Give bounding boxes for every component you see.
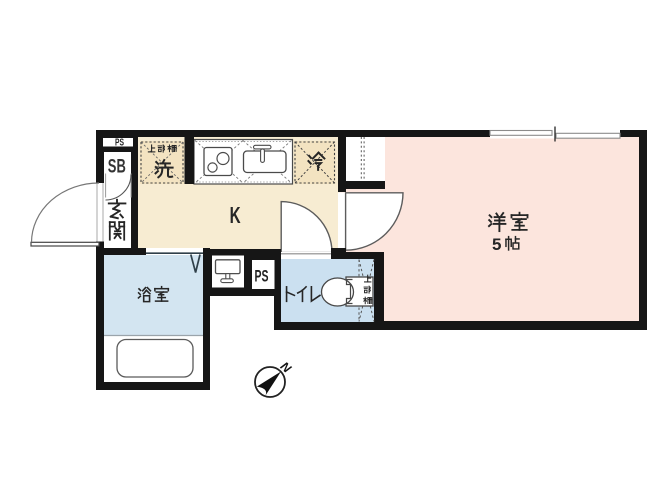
svg-text:PS: PS bbox=[115, 138, 124, 149]
svg-text:5: 5 bbox=[492, 235, 501, 254]
svg-text:K: K bbox=[230, 202, 241, 228]
svg-text:PS: PS bbox=[255, 268, 269, 286]
